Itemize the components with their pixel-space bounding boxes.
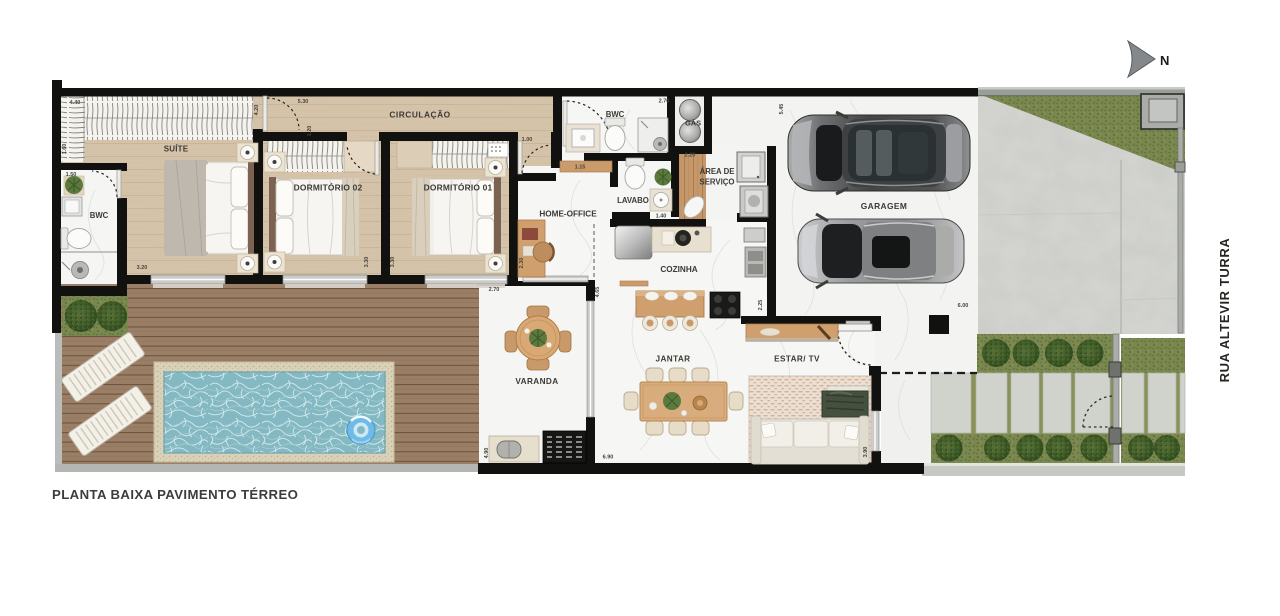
svg-text:4.20: 4.20 [254,105,260,116]
svg-text:2.70: 2.70 [489,287,500,293]
svg-text:BWC: BWC [90,211,109,220]
svg-text:1.60: 1.60 [62,144,68,155]
svg-text:ÁREA DE: ÁREA DE [700,167,735,176]
svg-text:ESTAR/ TV: ESTAR/ TV [774,355,820,364]
svg-text:1.00: 1.00 [522,137,533,143]
svg-text:3.30: 3.30 [390,257,396,268]
svg-text:SUÍTE: SUÍTE [164,145,189,154]
svg-text:PLANTA BAIXA PAVIMENTO TÉRREO: PLANTA BAIXA PAVIMENTO TÉRREO [52,487,298,502]
svg-text:COZINHA: COZINHA [660,265,697,274]
svg-text:DORMITÓRIO 01: DORMITÓRIO 01 [424,182,493,193]
svg-text:SERVIÇO: SERVIÇO [700,178,735,187]
svg-text:JANTAR: JANTAR [656,355,691,364]
svg-text:6.90: 6.90 [603,455,614,461]
svg-text:DORMITÓRIO 02: DORMITÓRIO 02 [294,182,363,193]
svg-text:VARANDA: VARANDA [515,377,558,386]
svg-text:HOME-OFFICE: HOME-OFFICE [539,210,597,219]
svg-text:4.40: 4.40 [70,100,81,106]
svg-text:2.30: 2.30 [519,258,525,269]
svg-text:4.65: 4.65 [595,287,601,298]
svg-text:2.20: 2.20 [685,153,696,159]
svg-text:1.50: 1.50 [66,172,77,178]
svg-text:3.30: 3.30 [364,257,370,268]
svg-text:5.45: 5.45 [779,104,785,115]
svg-text:N: N [1160,53,1169,68]
svg-text:2.25: 2.25 [758,300,764,311]
svg-text:RUA ALTEVIR TURRA: RUA ALTEVIR TURRA [1217,238,1232,383]
svg-text:1.15: 1.15 [575,165,586,171]
svg-text:1.40: 1.40 [656,214,667,220]
svg-text:6.00: 6.00 [958,303,969,309]
svg-text:BWC: BWC [606,110,625,119]
svg-text:GARAGEM: GARAGEM [861,201,908,211]
svg-text:GÁS: GÁS [685,119,701,128]
svg-text:3.90: 3.90 [863,447,869,458]
svg-text:CIRCULAÇÃO: CIRCULAÇÃO [389,110,450,120]
svg-text:4.90: 4.90 [484,448,490,459]
svg-text:LAVABO: LAVABO [617,196,649,205]
svg-text:2.70: 2.70 [659,99,670,105]
svg-text:1.20: 1.20 [307,126,313,137]
svg-text:3.20: 3.20 [137,265,148,271]
svg-text:5.30: 5.30 [298,99,309,105]
